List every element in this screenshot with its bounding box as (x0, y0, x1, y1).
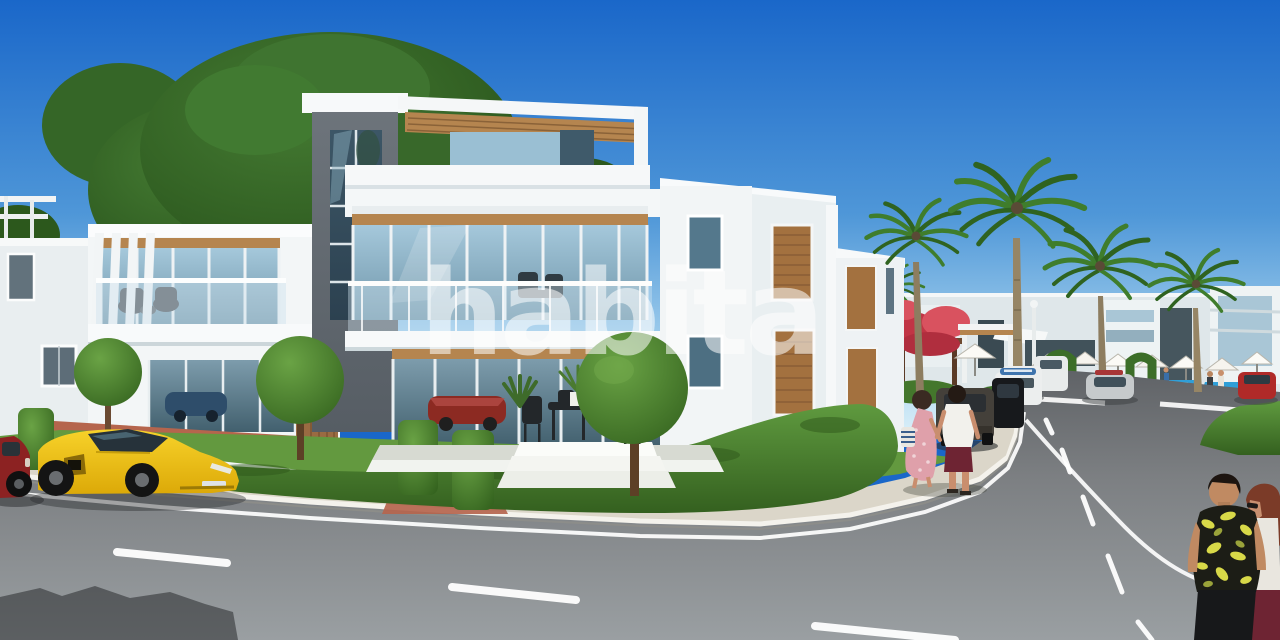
right-window-lower (688, 336, 722, 388)
blue-car-reflection (165, 392, 227, 416)
terrace-steps (497, 442, 676, 488)
left-window-upper (8, 254, 34, 300)
right-window-upper (688, 216, 722, 270)
main-balcony (345, 189, 660, 351)
silver-coupe (1082, 370, 1138, 405)
scene-canvas (0, 0, 1280, 640)
annex-shutter-lower (847, 348, 877, 412)
black-suv (992, 378, 1024, 428)
wood-shutter-upper (772, 225, 812, 300)
main-balcony-railing (348, 283, 652, 333)
architectural-render: habita (0, 0, 1280, 640)
red-hatchback (1234, 372, 1278, 405)
left-balcony-railing (96, 280, 286, 326)
annex-shutter-upper (846, 266, 876, 330)
